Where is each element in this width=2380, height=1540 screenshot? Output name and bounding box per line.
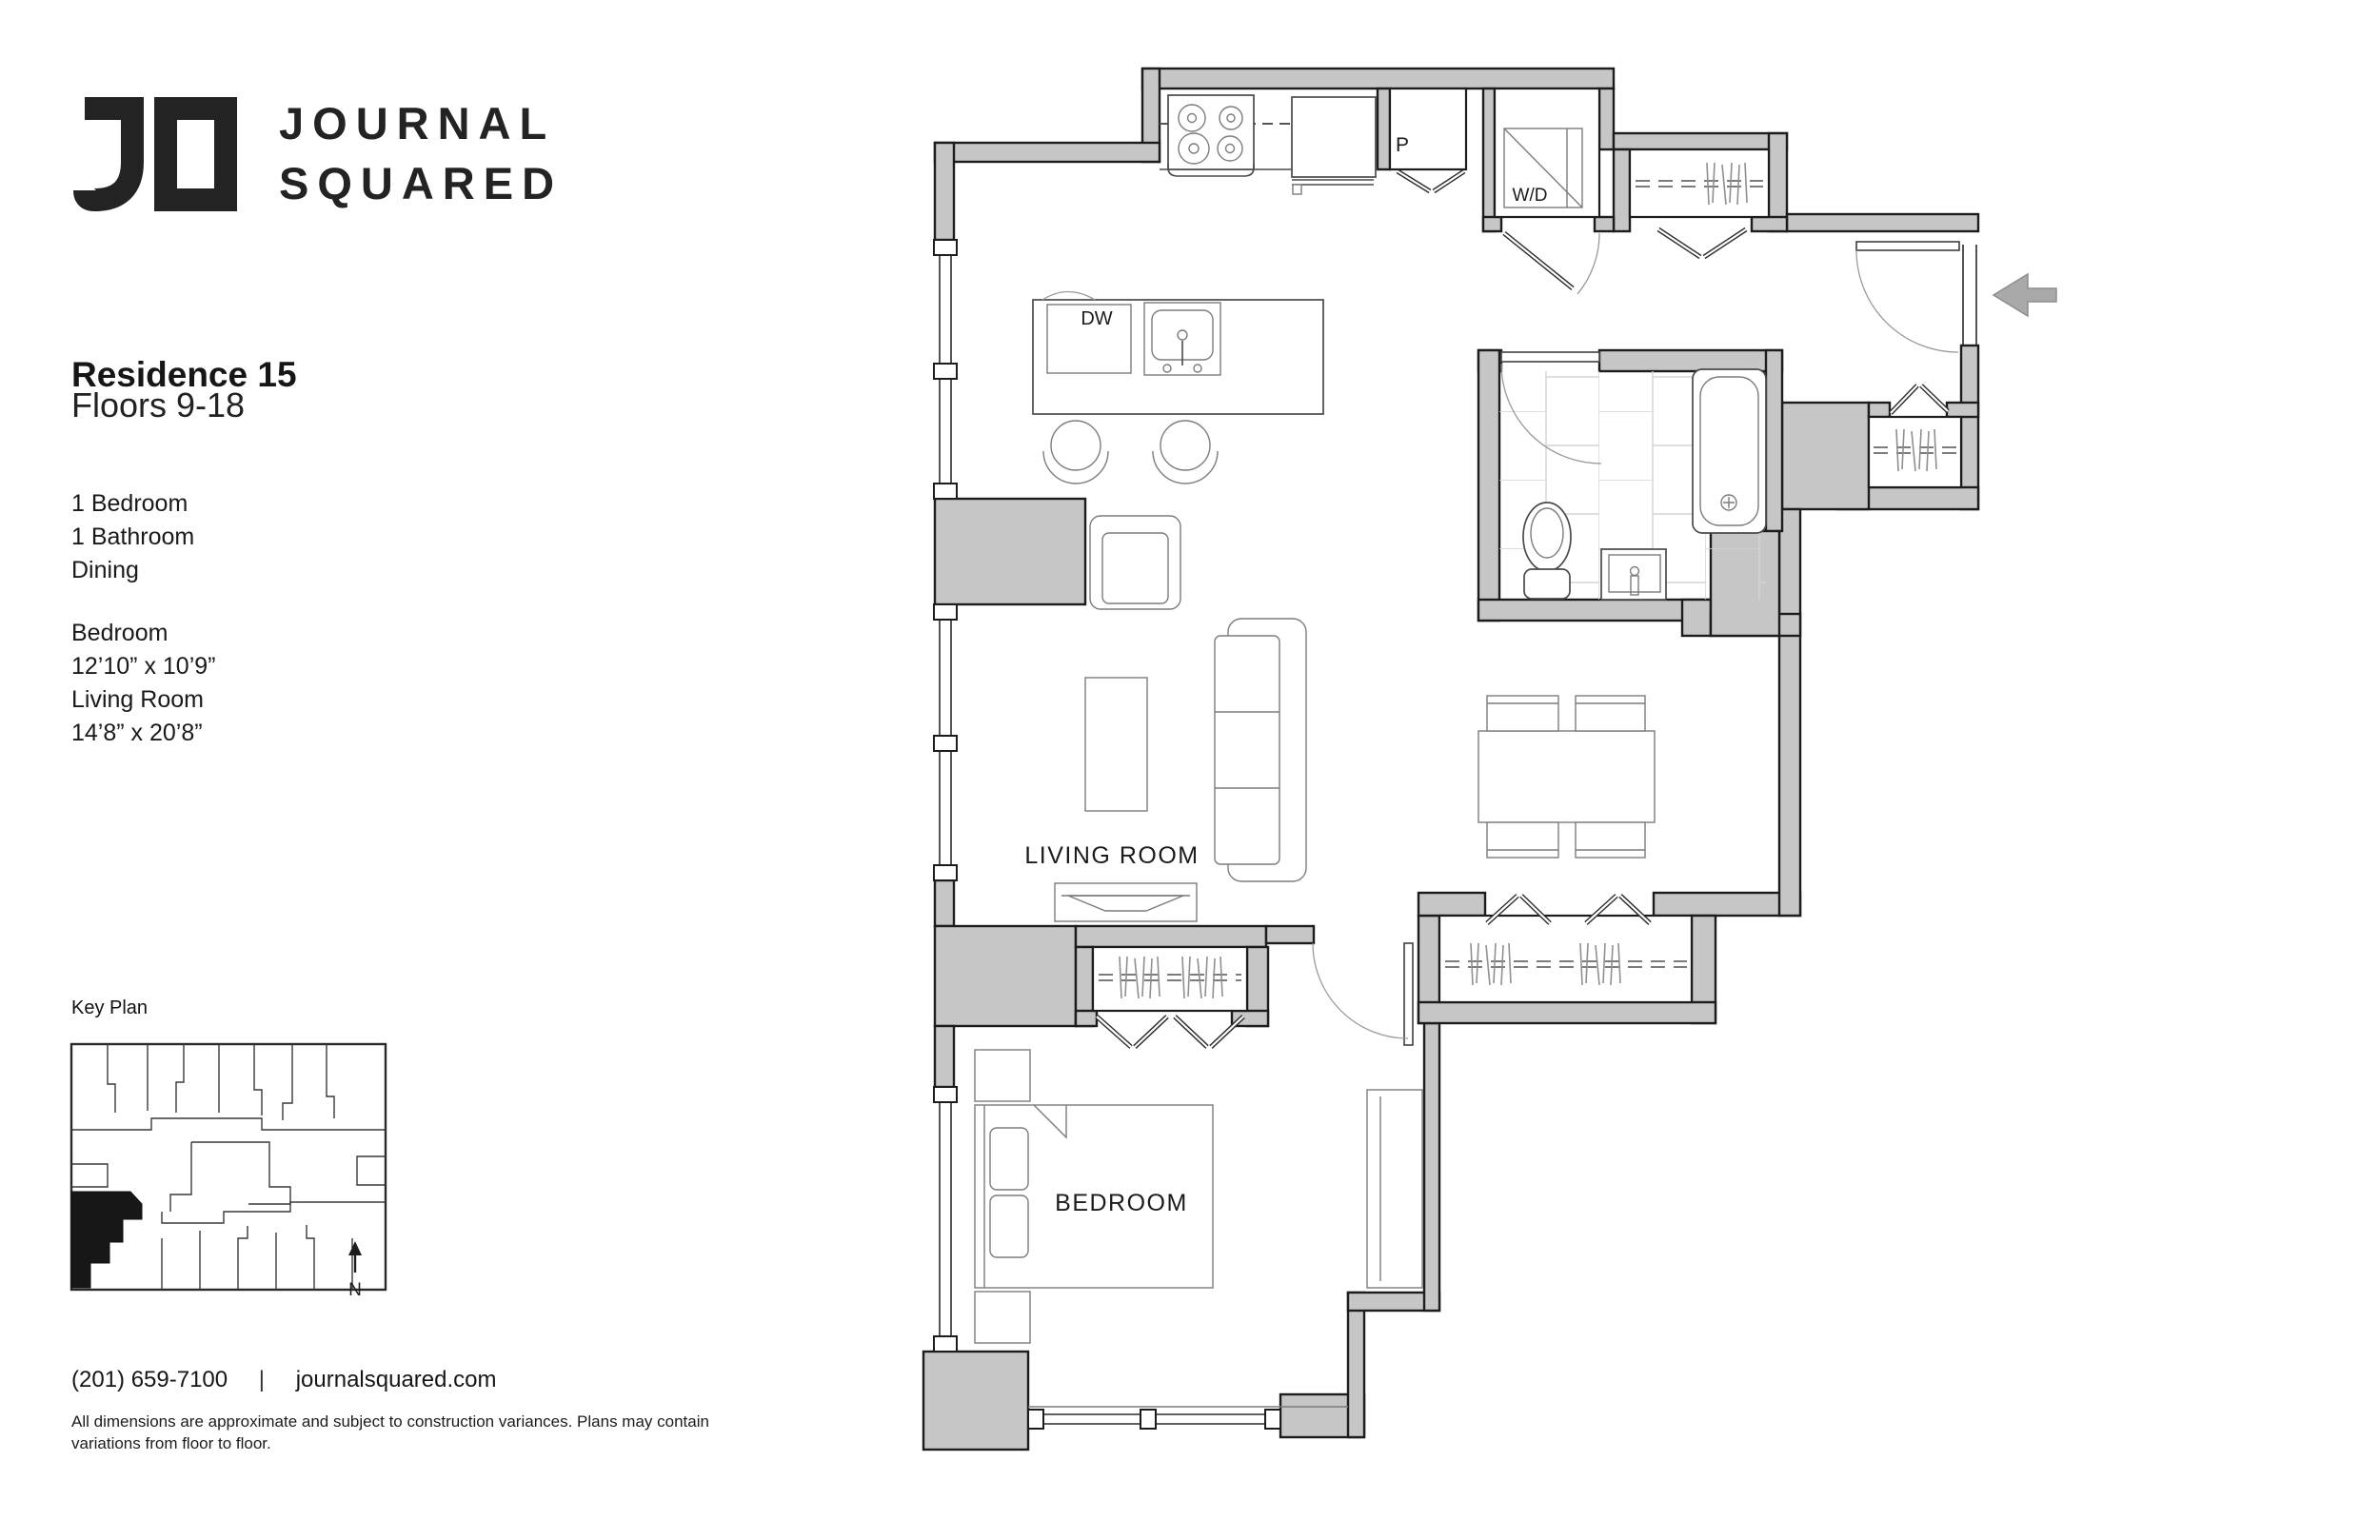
coffee-table — [1085, 678, 1147, 811]
pantry-label: P — [1396, 134, 1409, 156]
washer-dryer-closet: W/D — [1495, 89, 1599, 294]
coat-closet — [1630, 149, 1769, 257]
bar-stool-icon — [1153, 421, 1218, 484]
refrigerator-icon — [1292, 97, 1376, 194]
tv-console-icon — [1055, 883, 1197, 921]
bathroom-sink-icon — [1601, 549, 1666, 600]
dining-table — [1478, 731, 1655, 822]
bar-stool-icon — [1043, 421, 1108, 484]
dining-chair — [1487, 696, 1558, 731]
floor-plan: P W/D DW — [0, 0, 2380, 1540]
floorplan-page: JOURNAL SQUARED Residence 15 Floors 9-18… — [0, 0, 2380, 1540]
dining-area — [1478, 696, 1655, 858]
sofa-icon — [1215, 619, 1306, 881]
entry-arrow-icon — [1993, 274, 2056, 316]
nightstand — [975, 1050, 1030, 1101]
entry-door — [1856, 242, 1976, 352]
dining-chair — [1576, 822, 1645, 858]
nightstand — [975, 1292, 1030, 1343]
bedroom-door — [1313, 943, 1413, 1045]
stove-icon — [1168, 95, 1254, 176]
kitchen-island: DW — [1033, 292, 1323, 484]
washer-dryer-label: W/D — [1513, 186, 1548, 206]
armchair-icon — [1090, 516, 1180, 609]
entry-closet — [1869, 385, 1961, 487]
living-room-label: LIVING ROOM — [1024, 842, 1199, 869]
bedroom-label: BEDROOM — [1055, 1190, 1188, 1216]
bedroom-closet — [1093, 947, 1247, 1047]
bathtub-icon — [1693, 369, 1766, 533]
dresser-icon — [1367, 1090, 1422, 1288]
dining-chair — [1487, 822, 1558, 858]
dishwasher-label: DW — [1081, 308, 1112, 329]
pantry-closet: P — [1390, 89, 1466, 191]
bathroom — [1499, 352, 1766, 600]
toilet-icon — [1523, 503, 1571, 599]
dining-chair — [1576, 696, 1645, 731]
